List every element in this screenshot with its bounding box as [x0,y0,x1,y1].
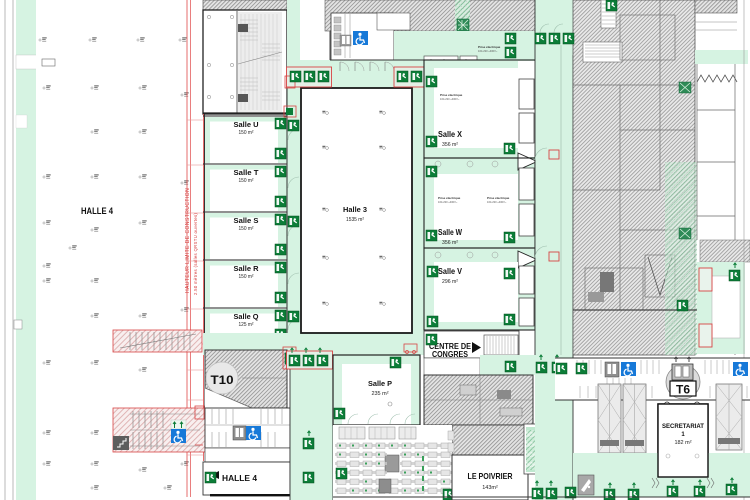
svg-text:16A 230 +400V~: 16A 230 +400V~ [478,49,498,53]
svg-text:CONGRES: CONGRES [432,350,469,359]
svg-text:16A 230 +400V~: 16A 230 +400V~ [440,97,460,101]
svg-text:296 m²: 296 m² [442,279,458,285]
svg-text:T6: T6 [676,383,690,397]
svg-text:Prise électrique: Prise électrique [440,93,463,97]
svg-text:HALLE 4: HALLE 4 [81,206,113,216]
svg-text:Salle P: Salle P [368,379,392,388]
svg-text:LE POIVRIER: LE POIVRIER [468,471,513,481]
svg-text:16A 230 +400V~: 16A 230 +400V~ [487,200,507,204]
svg-text:Prise électrique: Prise électrique [478,45,501,49]
svg-text:HAUTEUR LIMITE DE CONSTRUCTION: HAUTEUR LIMITE DE CONSTRUCTION [185,188,191,293]
svg-text:356 m²: 356 m² [442,240,458,246]
svg-text:T10: T10 [211,373,234,387]
svg-text:Salle T: Salle T [234,168,259,177]
svg-text:Salle R: Salle R [234,264,260,273]
svg-text:125 m²: 125 m² [239,322,254,328]
svg-text:356 m²: 356 m² [442,142,458,148]
svg-text:Salle W: Salle W [438,228,462,237]
svg-text:150 m²: 150 m² [239,178,254,184]
svg-text:150 m²: 150 m² [239,130,254,136]
svg-text:2.50 mètres (salles QRSTU ouve: 2.50 mètres (salles QRSTU ouvertes) [193,213,198,295]
svg-text:16A 230 +400V~: 16A 230 +400V~ [438,200,458,204]
svg-text:SECRETARIAT: SECRETARIAT [662,423,704,430]
svg-text:Salle X: Salle X [438,130,463,139]
svg-text:Prise électrique: Prise électrique [487,196,510,200]
svg-text:Salle S: Salle S [234,216,259,225]
svg-text:Prise électrique: Prise électrique [438,196,461,200]
svg-text:1535 m²: 1535 m² [346,217,364,223]
svg-text:HALLE 4: HALLE 4 [222,474,258,483]
svg-text:Halle 3: Halle 3 [343,205,367,214]
svg-text:150 m²: 150 m² [239,226,254,232]
svg-text:235 m²: 235 m² [371,391,388,397]
svg-text:182 m²: 182 m² [674,440,691,446]
svg-text:143m²: 143m² [482,485,498,491]
svg-text:150 m²: 150 m² [239,274,254,280]
svg-text:Salle Q: Salle Q [234,312,259,321]
svg-text:Salle V: Salle V [438,267,463,276]
svg-text:Salle U: Salle U [234,120,259,129]
